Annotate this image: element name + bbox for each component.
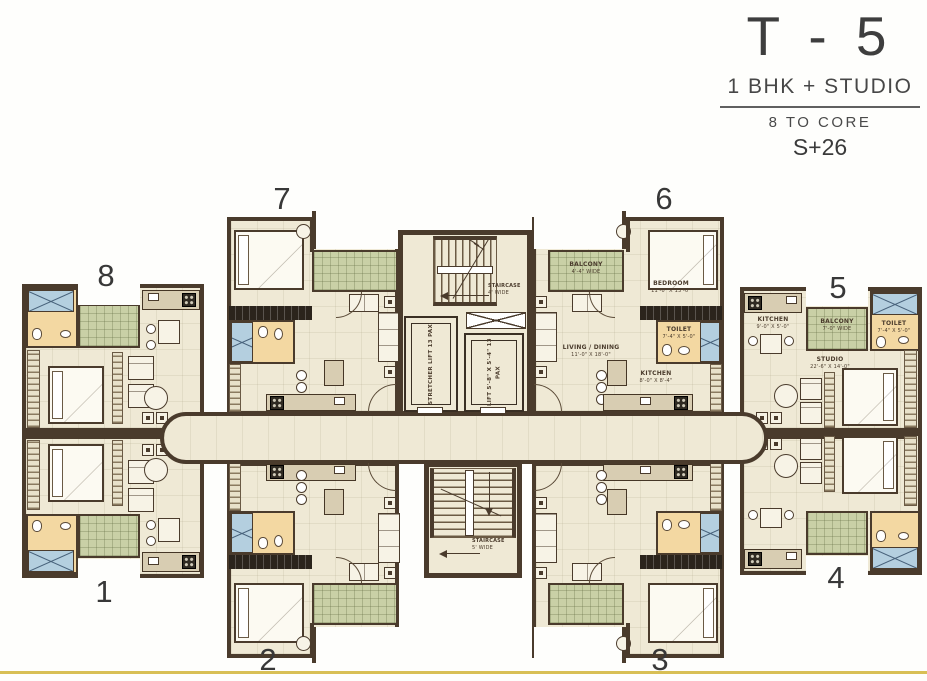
- unit-6-toilet-label: TOILET 7'-4" X 5'-0": [658, 326, 700, 340]
- unit-5-hob: [748, 296, 762, 310]
- unit-1-armchair: [128, 488, 154, 512]
- unit-6-hob: [674, 396, 688, 410]
- unit-6-kitchen-label: KITCHEN 8'-0" X 8'-4": [628, 370, 684, 384]
- unit-1-chair: [146, 536, 156, 546]
- lift-lobby-cross-box: [466, 312, 526, 329]
- staircase-lower-label: STAIRCASE 5' WIDE: [472, 538, 520, 551]
- unit-3-shower: [700, 513, 720, 553]
- unit-2-facade-notch: [312, 627, 402, 663]
- unit-7-facade-notch: [312, 211, 402, 249]
- unit-2-wardrobe: [229, 555, 312, 569]
- passenger-lift: LIFT 5'-8" X 5'-4" 13 PAX: [464, 333, 524, 412]
- unit-4-side-table: [770, 438, 782, 450]
- unit-3-facade-notch: [534, 627, 626, 663]
- unit-7-washbasin: [274, 328, 283, 340]
- unit-2-wc: [258, 537, 268, 549]
- unit-number-8: 8: [88, 258, 124, 294]
- unit-1-shelf: [112, 440, 123, 506]
- unit-6-facade-notch: [534, 211, 626, 249]
- unit-8-wardrobe-shelf: [27, 350, 40, 428]
- unit-8-shower: [28, 290, 74, 312]
- unit-6-chair: [596, 370, 607, 381]
- unit-2-shaft: [229, 463, 241, 511]
- floor-count: S+26: [718, 134, 922, 161]
- unit-1-wardrobe-shelf: [27, 440, 40, 510]
- unit-3-washbasin: [678, 520, 690, 529]
- unit-3-sofa: [535, 513, 557, 563]
- unit-2-side-table: [384, 567, 396, 579]
- unit-3-chair: [596, 482, 607, 493]
- unit-5-balcony-label: BALCONY 7'-0" WIDE: [808, 318, 866, 332]
- unit-1-washbasin: [60, 522, 71, 530]
- unit-7-shower: [231, 322, 253, 362]
- unit-3-wc: [662, 519, 672, 531]
- unit-7-kitchen-sink: [334, 397, 345, 405]
- unit-8-dining-table: [158, 320, 180, 344]
- unit-2-bed: [234, 583, 304, 643]
- unit-2-kitchen-counter-vertical: [324, 489, 344, 515]
- staircase-upper-label: STAIRCASE 4' WIDE: [488, 283, 532, 296]
- unit-number-4: 4: [818, 560, 854, 596]
- unit-8-chair: [146, 340, 156, 350]
- unit-4-wc: [876, 530, 886, 542]
- unit-8-balcony: [78, 304, 140, 348]
- unit-7-side-table: [384, 366, 396, 378]
- unit-1-wc: [32, 520, 42, 532]
- unit-number-7: 7: [264, 181, 300, 217]
- unit-5-toilet-label: TOILET 7'-4" X 5'-0": [870, 320, 918, 334]
- unit-2-side-table: [384, 497, 396, 509]
- unit-4-chair: [748, 510, 758, 520]
- bottom-accent-line: [0, 671, 927, 674]
- stair-arrow-line-vertical: [489, 472, 490, 508]
- unit-8-armchair: [128, 356, 154, 380]
- unit-5-studio-label: STUDIO 22'-6" X 14'-0": [798, 356, 862, 370]
- unit-4-washbasin: [898, 532, 909, 540]
- unit-6-bedroom-wall: [626, 219, 630, 252]
- unit-6-sofa: [535, 312, 557, 362]
- unit-number-6: 6: [646, 181, 682, 217]
- unit-4-shower: [872, 547, 918, 569]
- unit-6-kitchen-sink: [640, 397, 651, 405]
- unit-5-side-table: [770, 412, 782, 424]
- unit-6-washbasin: [678, 346, 690, 355]
- unit-6-chair: [596, 382, 607, 393]
- unit-2-washbasin: [274, 535, 283, 547]
- unit-3-hob: [674, 465, 688, 479]
- unit-7-chair: [296, 382, 307, 393]
- tower-name: T - 5: [718, 6, 922, 67]
- unit-5-chair: [784, 336, 794, 346]
- unit-5-shelf: [824, 372, 835, 428]
- unit-2-bedroom-wall: [310, 623, 314, 656]
- unit-8-shelf: [112, 352, 123, 424]
- unit-7-chair: [296, 370, 307, 381]
- unit-2-balcony: [312, 583, 398, 625]
- unit-4-balcony: [806, 511, 868, 555]
- unit-7-shaft: [229, 364, 241, 412]
- unit-5-wardrobe-shelf: [904, 350, 917, 428]
- stair-arrow-head: [440, 292, 448, 300]
- unit-7-balcony: [312, 250, 398, 292]
- unit-6-bedroom-label: BEDROOM 11'-0" X 13'-0": [636, 280, 706, 294]
- unit-4-hob: [748, 552, 762, 566]
- unit-1-dining-table: [158, 518, 180, 542]
- unit-4-shelf: [824, 436, 835, 492]
- unit-7-kitchen-counter-vertical: [324, 360, 344, 386]
- unit-number-5: 5: [820, 270, 856, 306]
- stair-arrow-head-down: [485, 508, 493, 516]
- unit-4-chair: [784, 510, 794, 520]
- unit-5-armchair: [800, 402, 822, 424]
- unit-8-round-table: [144, 386, 168, 410]
- unit-1-bed: [48, 444, 104, 502]
- unit-2-chair: [296, 470, 307, 481]
- unit-7-wardrobe: [229, 306, 312, 320]
- unit-6-wc: [662, 344, 672, 356]
- unit-2-kitchen-sink: [334, 466, 345, 474]
- unit-6-side-table: [535, 296, 547, 308]
- unit-2-stool: [296, 636, 311, 651]
- stair-arrow-line: [446, 553, 480, 554]
- unit-3-kitchen-sink: [640, 466, 651, 474]
- unit-7-stool: [296, 224, 311, 239]
- unit-4-armchair: [800, 438, 822, 460]
- unit-1-balcony: [78, 514, 140, 558]
- unit-1-kitchen-sink: [148, 557, 159, 565]
- unit-6-shower: [700, 322, 720, 362]
- unit-4-wardrobe-shelf: [904, 436, 917, 506]
- unit-8-wc: [32, 328, 42, 340]
- unit-8-hob: [182, 293, 196, 307]
- unit-number-1: 1: [86, 574, 122, 610]
- stretcher-lift-label: STRETCHER LIFT 13 PAX: [427, 324, 435, 405]
- unit-5-kitchen-sink: [786, 296, 797, 304]
- unit-5-kitchen-label: KITCHEN 9'-0" X 5'-0": [744, 316, 802, 330]
- unit-mix-subtitle: 1 BHK + STUDIO: [718, 75, 922, 99]
- lift-door-sill: [480, 407, 506, 414]
- unit-7-wc: [258, 326, 268, 338]
- unit-6-living-label: LIVING / DINING 11'-0" X 18'-0": [556, 344, 626, 358]
- unit-2-chair: [296, 482, 307, 493]
- unit-8-washbasin: [60, 330, 71, 338]
- lift-door-sill: [417, 407, 443, 414]
- unit-1-side-table: [142, 444, 154, 456]
- title-divider: [720, 106, 920, 108]
- unit-3-side-table: [535, 567, 547, 579]
- unit-7-bed: [234, 230, 304, 290]
- unit-2-shower: [231, 513, 253, 553]
- unit-1-round-table: [144, 458, 168, 482]
- unit-4-armchair: [800, 462, 822, 484]
- unit-7-bedroom-wall: [310, 219, 314, 252]
- unit-1-chair: [146, 520, 156, 530]
- party-wall-left: [24, 429, 164, 439]
- unit-5-shower: [872, 293, 918, 315]
- unit-8-bed: [48, 366, 104, 424]
- staircase-upper-landing: [437, 266, 493, 274]
- unit-3-chair: [596, 494, 607, 505]
- stair-arrow-line: [447, 295, 489, 296]
- unit-6-wardrobe: [640, 306, 722, 320]
- unit-4-dining-table: [760, 508, 782, 528]
- unit-5-washbasin: [898, 336, 909, 344]
- unit-6-kitchen-counter-vertical: [607, 360, 627, 386]
- unit-3-bedroom-wall: [626, 623, 630, 656]
- unit-6-side-table: [535, 366, 547, 378]
- unit-5-chair: [748, 336, 758, 346]
- unit-3-side-table: [535, 497, 547, 509]
- unit-3-wardrobe: [640, 555, 722, 569]
- unit-2-hob: [270, 465, 284, 479]
- unit-4-bed: [842, 436, 898, 494]
- unit-1-hob: [182, 555, 196, 569]
- core-note: 8 TO CORE: [718, 114, 922, 131]
- unit-3-kitchen-counter-vertical: [607, 489, 627, 515]
- floor-plan: T - 5 1 BHK + STUDIO 8 TO CORE S+26 7 6 …: [0, 0, 927, 681]
- unit-5-bed: [842, 368, 898, 426]
- unit-5-dining-table: [760, 334, 782, 354]
- unit-8-chair: [146, 324, 156, 334]
- unit-6-balcony-label: BALCONY 4'-4" WIDE: [550, 261, 622, 275]
- unit-2-sofa: [378, 513, 400, 563]
- unit-3-bed: [648, 583, 718, 643]
- unit-7-hob: [270, 396, 284, 410]
- unit-7-side-table: [384, 296, 396, 308]
- corridor: [160, 412, 768, 464]
- unit-8-kitchen-sink: [148, 293, 159, 301]
- stretcher-lift: STRETCHER LIFT 13 PAX: [404, 316, 458, 412]
- unit-5-round-table: [774, 384, 798, 408]
- unit-2-chair: [296, 494, 307, 505]
- unit-3-chair: [596, 470, 607, 481]
- title-block: T - 5 1 BHK + STUDIO 8 TO CORE S+26: [718, 6, 922, 161]
- passenger-lift-label: LIFT 5'-8" X 5'-4" 13 PAX: [486, 335, 503, 410]
- stair-arrow-head: [439, 550, 447, 558]
- unit-5-wc: [876, 336, 886, 348]
- unit-4-kitchen-sink: [786, 552, 797, 560]
- unit-4-round-table: [774, 454, 798, 478]
- unit-5-armchair: [800, 378, 822, 400]
- unit-3-balcony: [548, 583, 624, 625]
- unit-7-sofa: [378, 312, 400, 362]
- unit-6-shaft: [710, 364, 722, 412]
- unit-8-side-table: [142, 412, 154, 424]
- unit-3-shaft: [710, 463, 722, 511]
- unit-1-shower: [28, 550, 74, 572]
